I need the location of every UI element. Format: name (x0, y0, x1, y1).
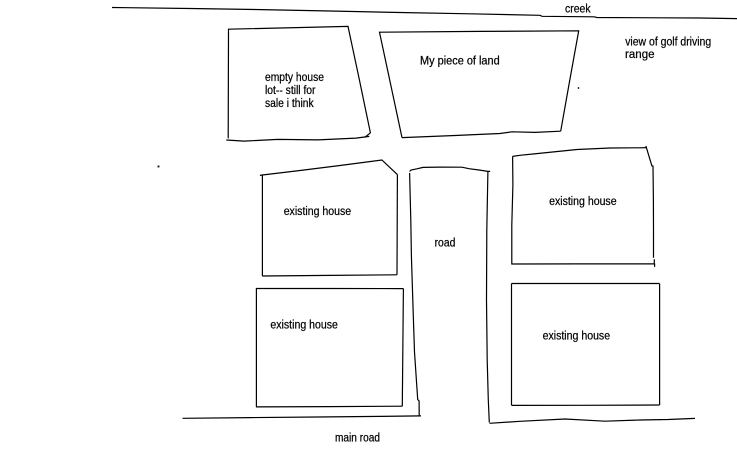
svg-text:empty house: empty house (265, 72, 324, 84)
svg-text:road: road (435, 238, 456, 250)
svg-text:sale i think: sale i think (265, 98, 314, 110)
svg-text:lot-- still for: lot-- still for (265, 85, 316, 97)
svg-text:existing house: existing house (270, 319, 338, 331)
svg-text:existing house: existing house (543, 330, 611, 342)
svg-text:view of golf driving: view of golf driving (625, 36, 711, 48)
svg-text:My piece of land: My piece of land (420, 55, 500, 67)
svg-text:existing house: existing house (284, 206, 352, 218)
svg-text:main road: main road (335, 433, 380, 445)
svg-text:existing house: existing house (549, 196, 617, 208)
svg-text:creek: creek (565, 3, 591, 15)
svg-text:range: range (625, 49, 655, 61)
